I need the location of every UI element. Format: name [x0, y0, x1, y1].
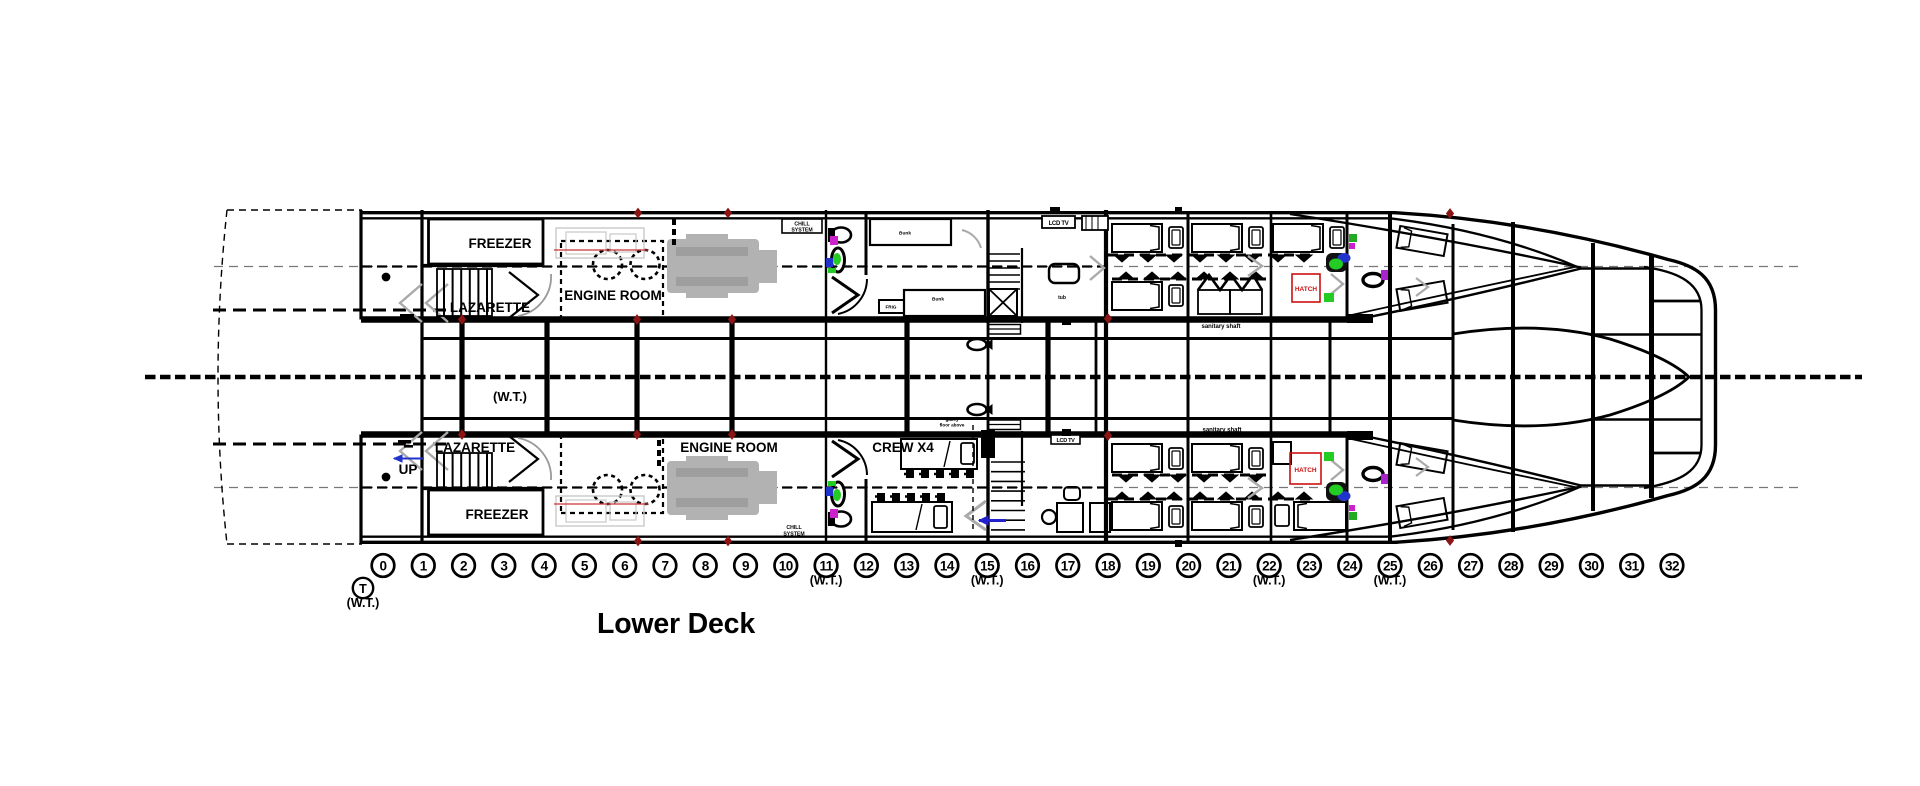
svg-text:8: 8	[702, 559, 710, 574]
svg-text:UP: UP	[399, 462, 418, 477]
svg-text:SYSTEM: SYSTEM	[783, 532, 804, 538]
svg-text:2: 2	[460, 559, 467, 574]
svg-text:10: 10	[779, 559, 793, 574]
svg-text:13: 13	[900, 559, 915, 574]
svg-text:18: 18	[1101, 559, 1116, 574]
svg-text:15: 15	[980, 559, 995, 574]
svg-text:1: 1	[420, 559, 428, 574]
svg-text:24: 24	[1343, 559, 1358, 574]
svg-text:ENGINE ROOM: ENGINE ROOM	[680, 440, 778, 455]
svg-text:CREW X4: CREW X4	[872, 440, 934, 455]
svg-text:T: T	[359, 582, 367, 596]
svg-text:12: 12	[859, 559, 873, 574]
svg-text:11: 11	[819, 559, 833, 574]
svg-text:29: 29	[1544, 559, 1558, 574]
svg-text:5: 5	[581, 559, 589, 574]
svg-text:FRIG: FRIG	[886, 305, 897, 310]
svg-text:CHILL: CHILL	[786, 525, 802, 531]
svg-text:31: 31	[1625, 559, 1640, 574]
svg-text:7: 7	[661, 559, 668, 574]
svg-text:(W.T.): (W.T.)	[971, 574, 1004, 588]
svg-text:22: 22	[1262, 559, 1276, 574]
svg-text:FREEZER: FREEZER	[465, 507, 528, 522]
svg-text:LAZARETTE: LAZARETTE	[450, 300, 530, 315]
svg-text:25: 25	[1383, 559, 1398, 574]
svg-text:HATCH: HATCH	[1295, 286, 1318, 293]
svg-text:(W.T.): (W.T.)	[347, 596, 380, 610]
svg-text:ENGINE ROOM: ENGINE ROOM	[564, 288, 662, 303]
svg-text:27: 27	[1464, 559, 1478, 574]
svg-text:30: 30	[1584, 559, 1598, 574]
svg-text:(W.T.): (W.T.)	[1253, 574, 1286, 588]
svg-text:LCD TV: LCD TV	[1049, 221, 1069, 227]
svg-text:floor above: floor above	[940, 423, 965, 428]
svg-text:tub: tub	[1058, 295, 1066, 301]
svg-text:SYSTEM: SYSTEM	[791, 228, 812, 234]
svg-text:3: 3	[500, 559, 508, 574]
svg-text:sanitary shaft: sanitary shaft	[1202, 428, 1241, 434]
svg-text:HATCH: HATCH	[1294, 467, 1317, 474]
svg-text:16: 16	[1020, 559, 1035, 574]
svg-text:FREEZER: FREEZER	[468, 236, 531, 251]
svg-text:Bunk: Bunk	[932, 297, 944, 303]
svg-text:32: 32	[1665, 559, 1679, 574]
svg-text:(W.T.): (W.T.)	[1374, 574, 1407, 588]
svg-text:26: 26	[1423, 559, 1438, 574]
svg-text:6: 6	[621, 559, 629, 574]
svg-text:LCD TV: LCD TV	[1056, 438, 1075, 444]
svg-text:21: 21	[1222, 559, 1237, 574]
svg-text:28: 28	[1504, 559, 1519, 574]
svg-text:Lower Deck: Lower Deck	[597, 608, 755, 640]
svg-text:galley: galley	[945, 417, 958, 422]
svg-text:0: 0	[379, 559, 386, 574]
svg-text:sanitary shaft: sanitary shaft	[1201, 324, 1240, 330]
svg-text:Bunk: Bunk	[899, 231, 911, 237]
svg-text:(W.T.): (W.T.)	[493, 389, 527, 404]
svg-text:14: 14	[940, 559, 955, 574]
svg-text:17: 17	[1061, 559, 1075, 574]
svg-text:20: 20	[1182, 559, 1196, 574]
svg-text:4: 4	[541, 559, 549, 574]
svg-text:23: 23	[1302, 559, 1317, 574]
svg-text:(W.T.): (W.T.)	[810, 574, 843, 588]
svg-text:19: 19	[1141, 559, 1155, 574]
svg-text:LAZARETTE: LAZARETTE	[435, 440, 515, 455]
svg-text:9: 9	[742, 559, 749, 574]
